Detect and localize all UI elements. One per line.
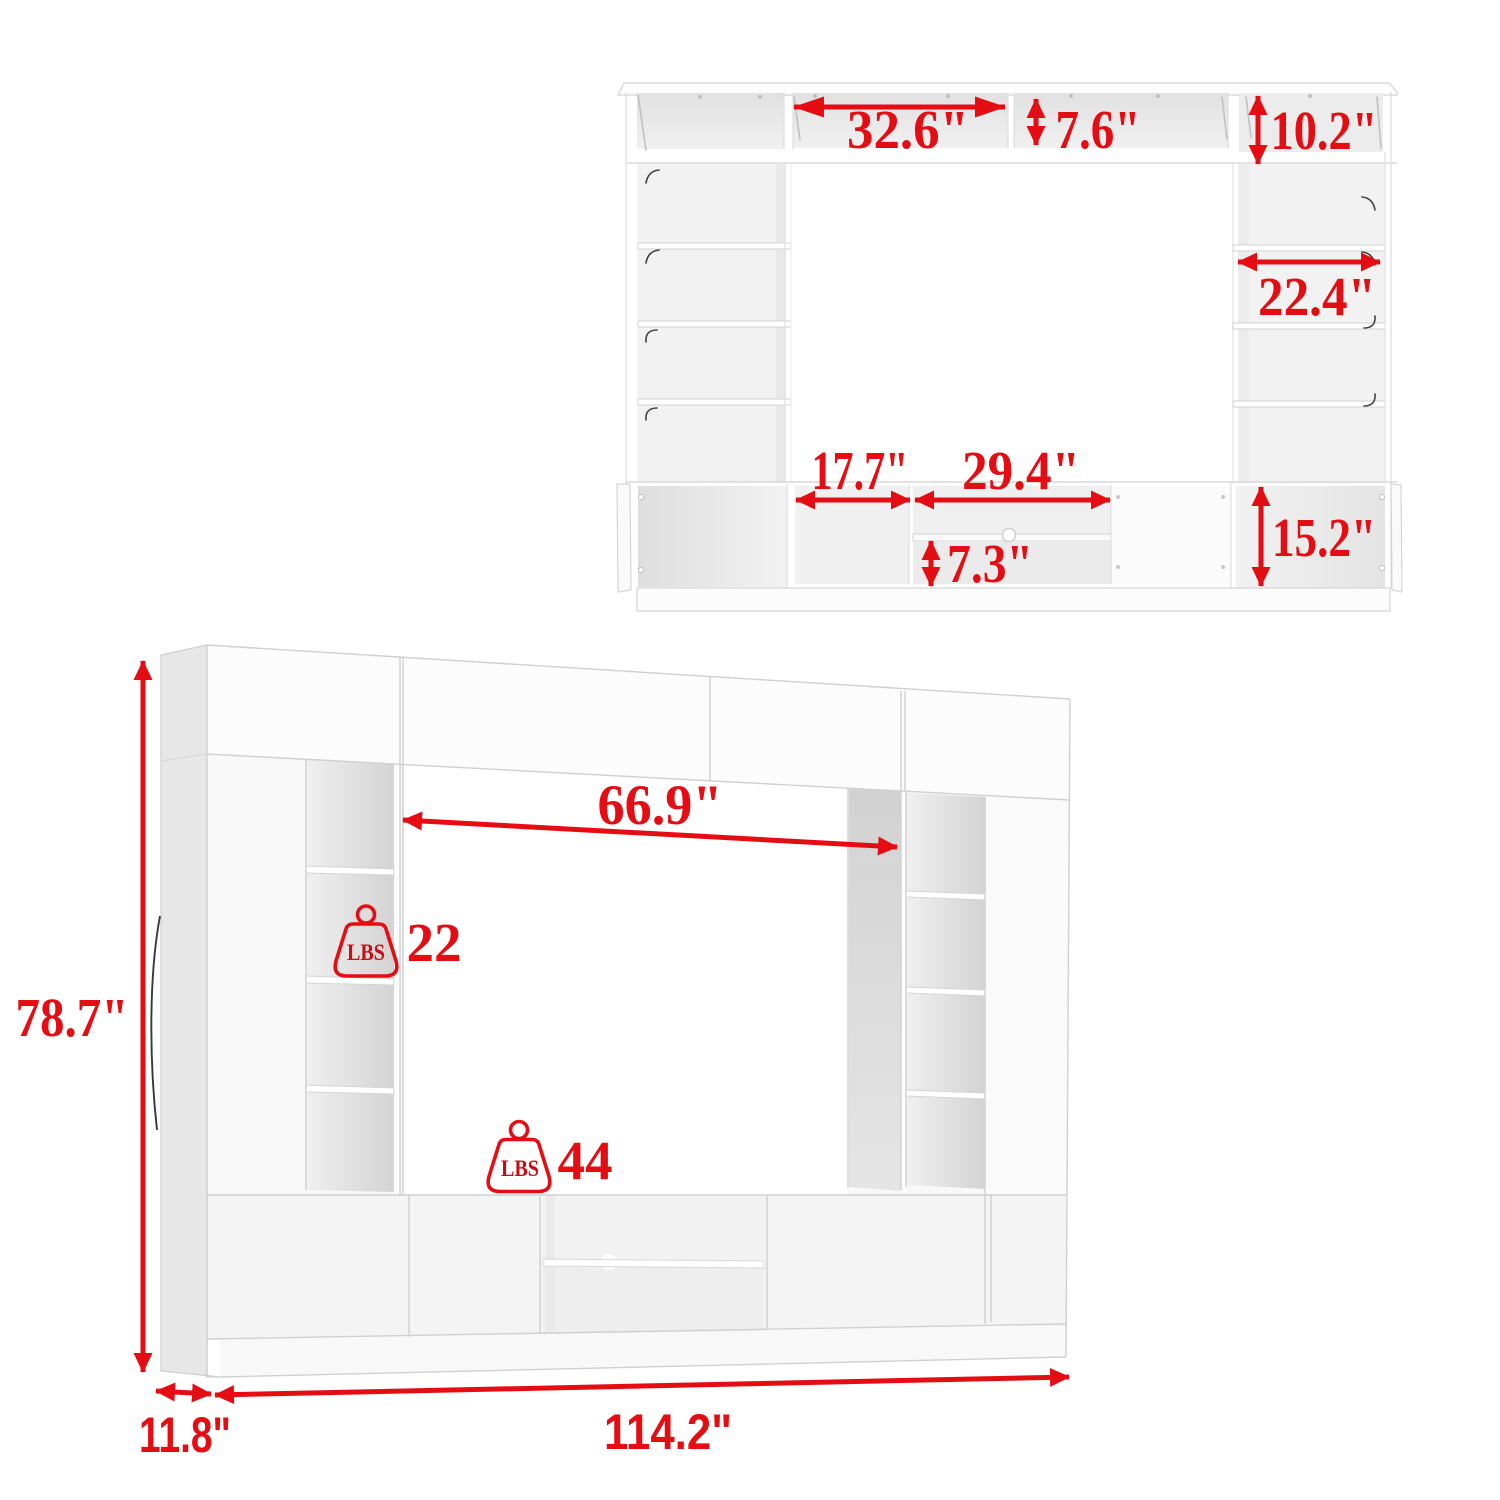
svg-text:32.6": 32.6" bbox=[847, 99, 969, 160]
svg-text:22.4": 22.4" bbox=[1258, 266, 1376, 327]
svg-text:78.7": 78.7" bbox=[16, 987, 129, 1048]
svg-text:15.2": 15.2" bbox=[1272, 507, 1376, 568]
svg-text:29.4": 29.4" bbox=[962, 440, 1080, 501]
svg-text:114.2": 114.2" bbox=[604, 1404, 732, 1460]
svg-text:66.9": 66.9" bbox=[598, 774, 723, 837]
svg-text:LBS: LBS bbox=[347, 940, 385, 965]
svg-text:44: 44 bbox=[558, 1130, 613, 1191]
svg-text:17.7": 17.7" bbox=[812, 440, 909, 501]
svg-text:10.2": 10.2" bbox=[1271, 100, 1378, 161]
svg-text:7.3": 7.3" bbox=[947, 533, 1033, 594]
svg-text:7.6": 7.6" bbox=[1056, 99, 1141, 160]
svg-text:LBS: LBS bbox=[501, 1156, 539, 1181]
svg-text:22: 22 bbox=[407, 912, 462, 973]
svg-text:11.8": 11.8" bbox=[139, 1407, 231, 1463]
